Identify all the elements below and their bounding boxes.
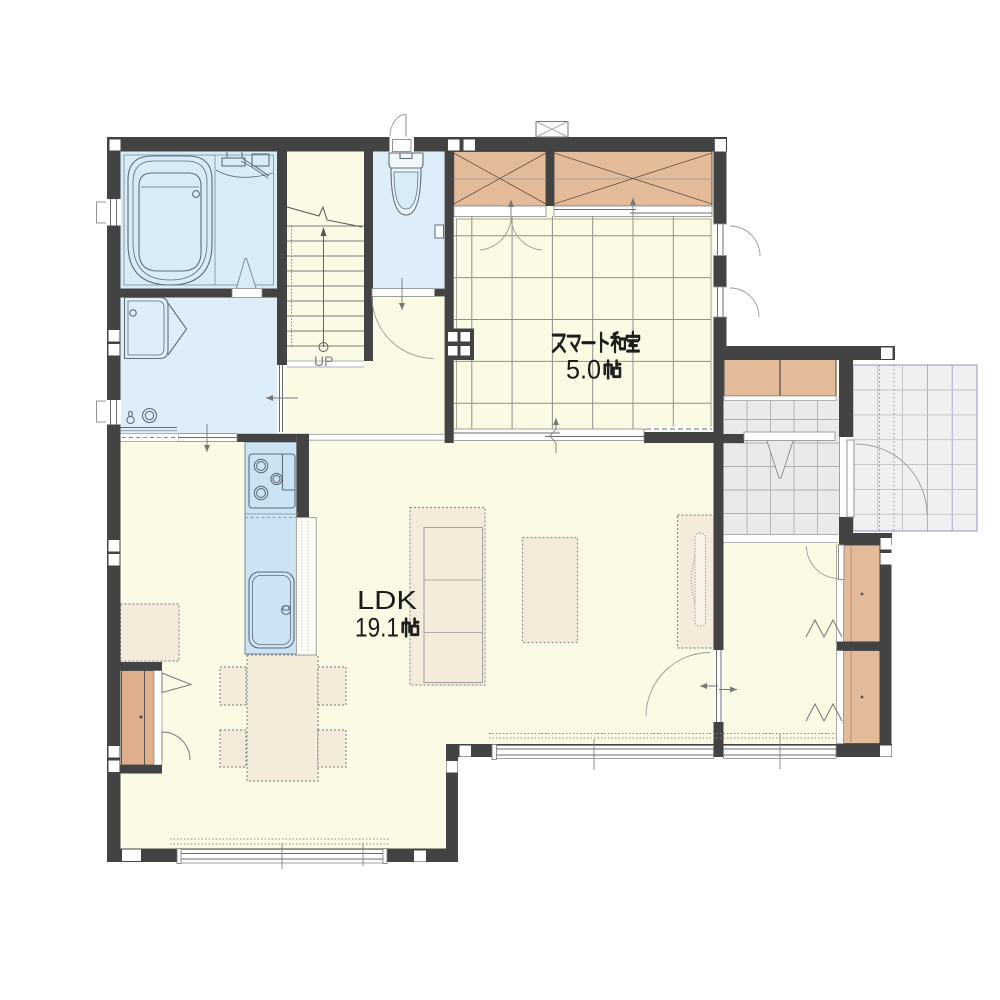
svg-text:UP: UP	[314, 353, 333, 369]
svg-text:19.1: 19.1	[355, 613, 399, 643]
svg-text:LDK: LDK	[357, 585, 418, 615]
svg-text:5.0: 5.0	[566, 355, 601, 385]
